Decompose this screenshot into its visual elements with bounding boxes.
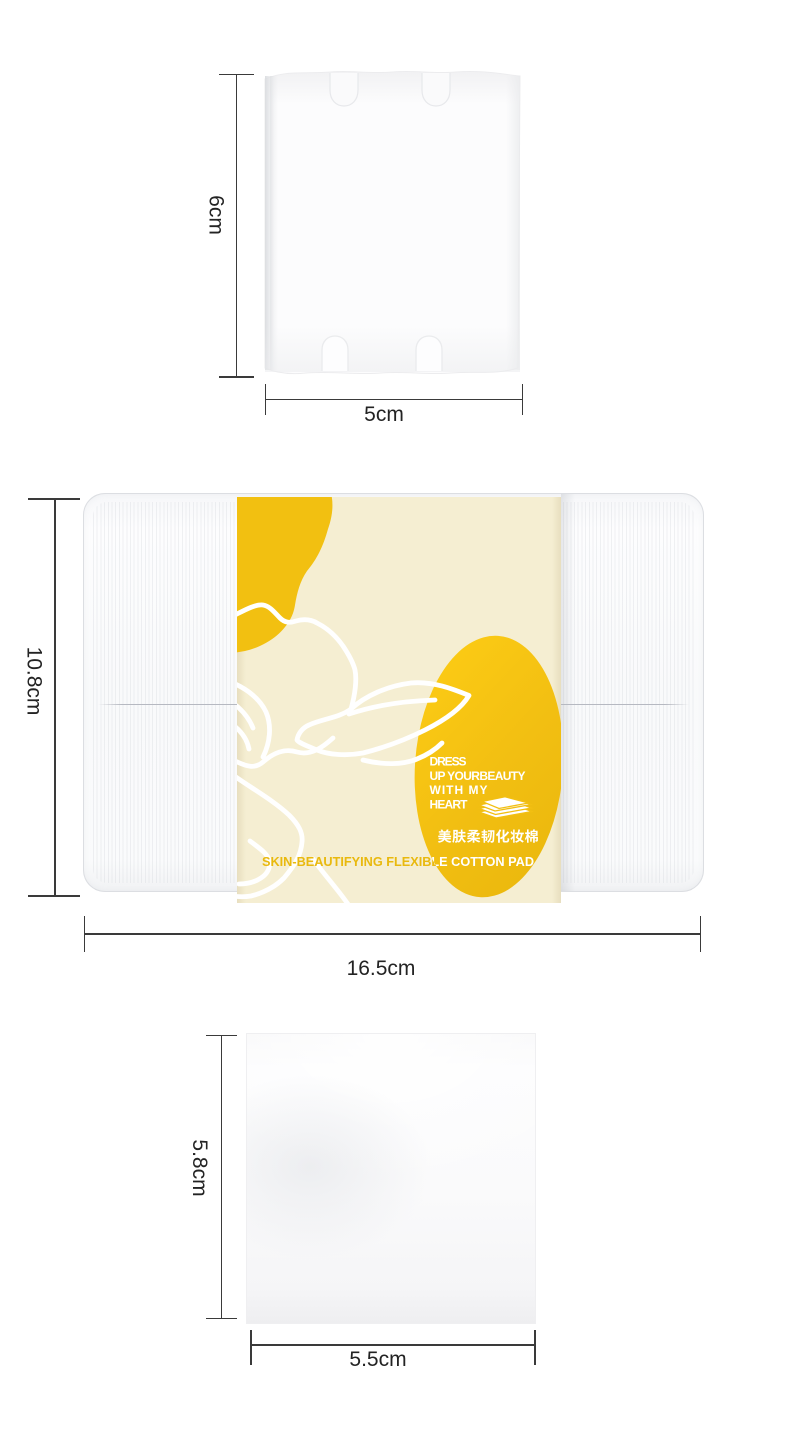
svg-text:DRESS: DRESS	[430, 755, 467, 769]
svg-text:UP YOURBEAUTY: UP YOURBEAUTY	[430, 769, 526, 783]
svg-text:WITH MY: WITH MY	[430, 783, 488, 797]
svg-text:HEART: HEART	[430, 797, 469, 811]
